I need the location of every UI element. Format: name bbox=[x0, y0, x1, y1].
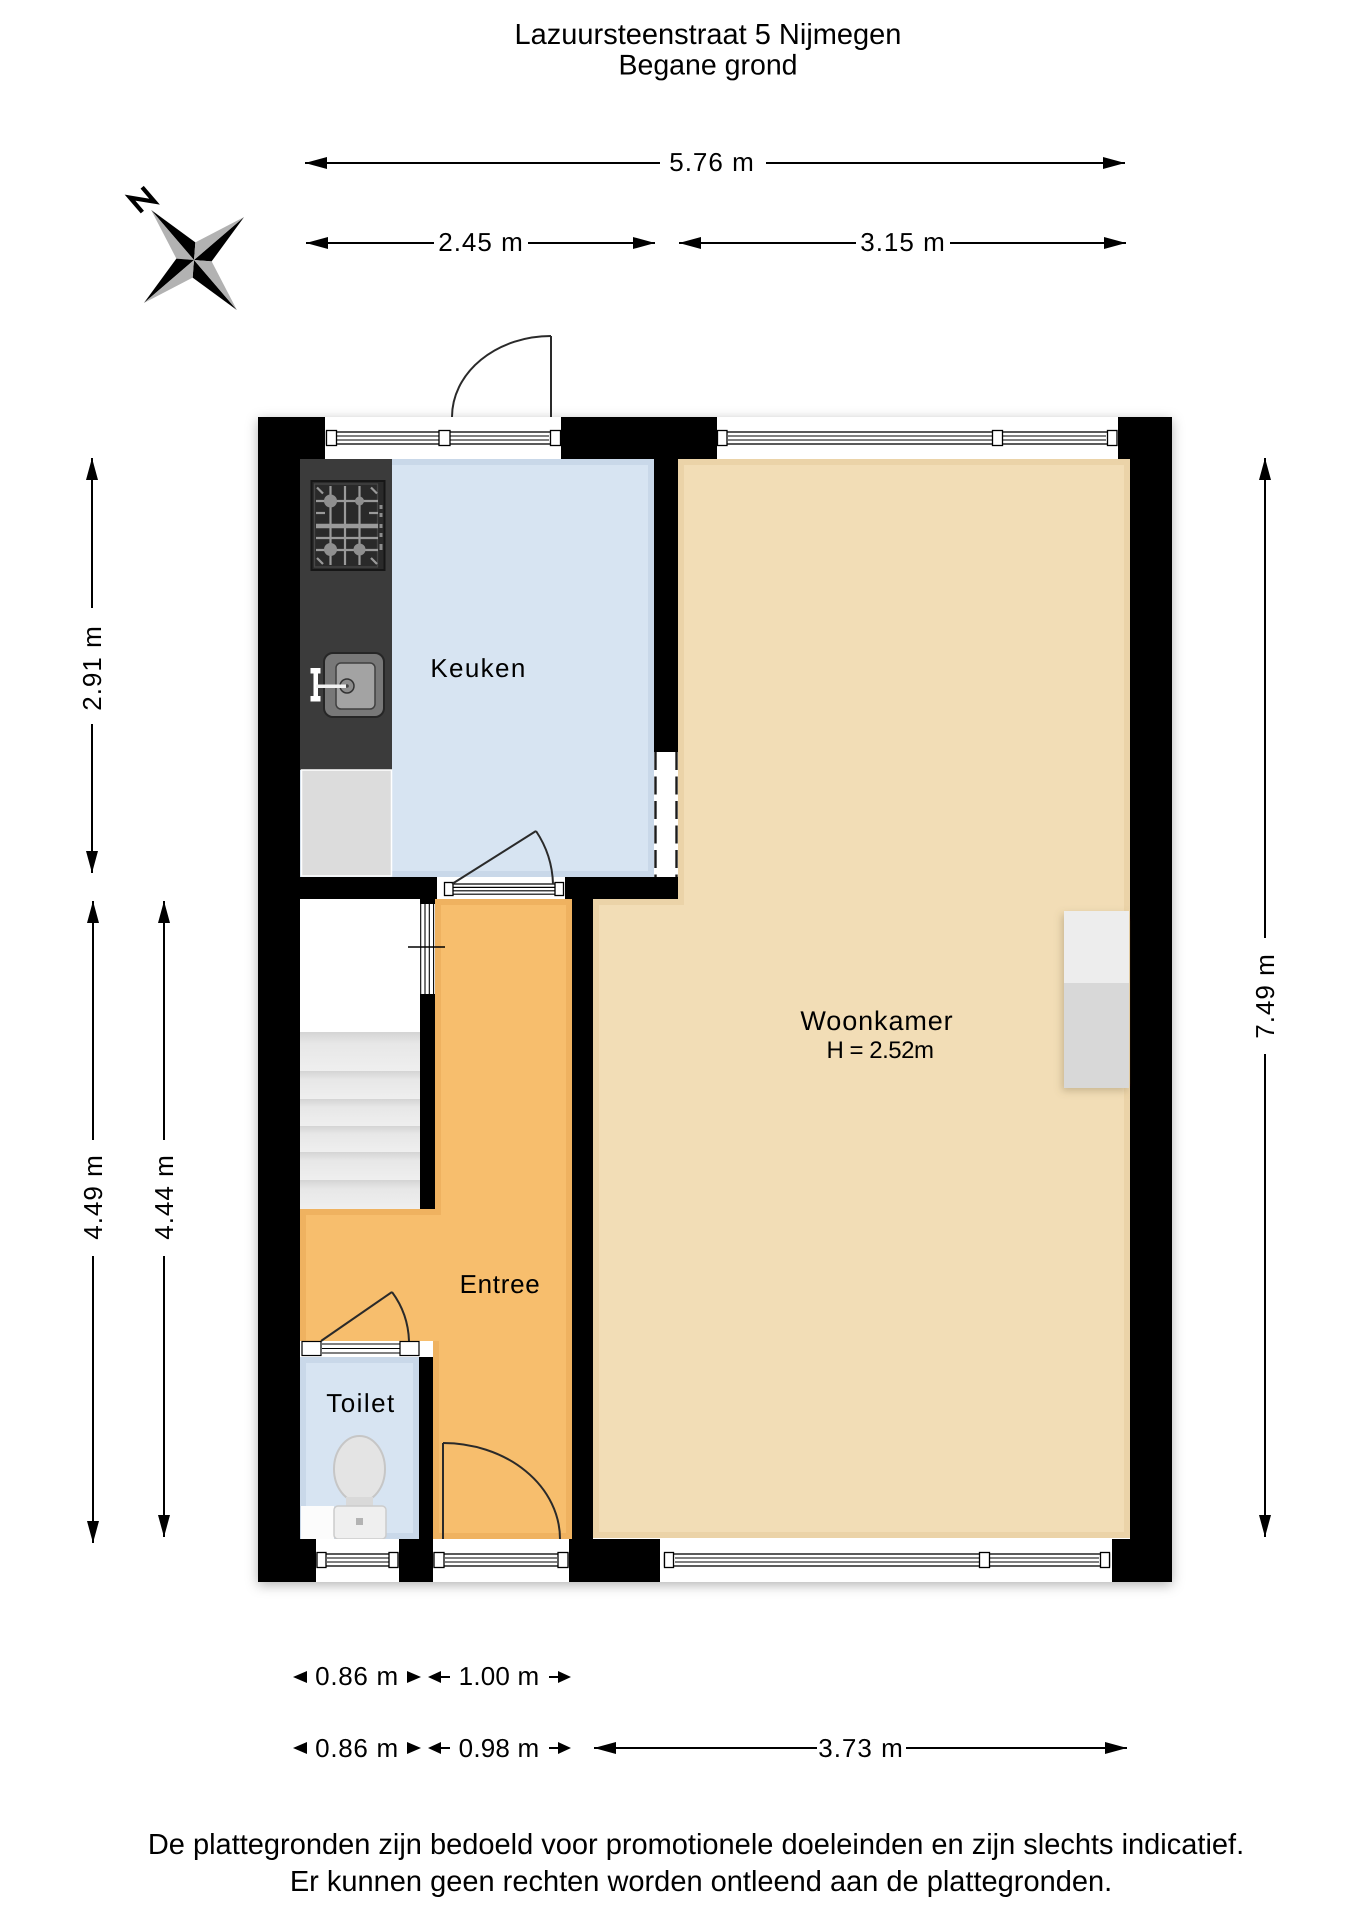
svg-text:Begane grond: Begane grond bbox=[618, 50, 797, 82]
svg-text:4.44 m: 4.44 m bbox=[149, 1154, 179, 1240]
svg-text:Er kunnen geen rechten worden: Er kunnen geen rechten worden ontleend a… bbox=[290, 1866, 1112, 1898]
svg-text:4.49 m: 4.49 m bbox=[78, 1154, 108, 1240]
svg-text:5.76 m: 5.76 m bbox=[669, 147, 755, 177]
svg-text:3.15 m: 3.15 m bbox=[860, 227, 946, 257]
svg-text:0.98 m: 0.98 m bbox=[459, 1733, 540, 1763]
svg-text:Keuken: Keuken bbox=[430, 653, 526, 683]
svg-text:H = 2.52m: H = 2.52m bbox=[827, 1037, 934, 1064]
svg-text:Woonkamer: Woonkamer bbox=[800, 1006, 953, 1036]
svg-text:0.86 m: 0.86 m bbox=[315, 1733, 399, 1763]
svg-text:2.91 m: 2.91 m bbox=[77, 625, 107, 711]
svg-text:Entree: Entree bbox=[460, 1269, 541, 1299]
svg-text:3.73 m: 3.73 m bbox=[818, 1733, 904, 1763]
svg-text:De plattegronden zijn bedoeld: De plattegronden zijn bedoeld voor promo… bbox=[148, 1829, 1244, 1861]
svg-text:0.86 m: 0.86 m bbox=[315, 1661, 399, 1691]
svg-text:7.49 m: 7.49 m bbox=[1250, 953, 1280, 1039]
svg-text:Lazuursteenstraat 5 Nijmegen: Lazuursteenstraat 5 Nijmegen bbox=[515, 19, 902, 51]
svg-text:1.00 m: 1.00 m bbox=[459, 1661, 540, 1691]
svg-text:Toilet: Toilet bbox=[326, 1388, 395, 1418]
svg-text:2.45 m: 2.45 m bbox=[438, 227, 524, 257]
